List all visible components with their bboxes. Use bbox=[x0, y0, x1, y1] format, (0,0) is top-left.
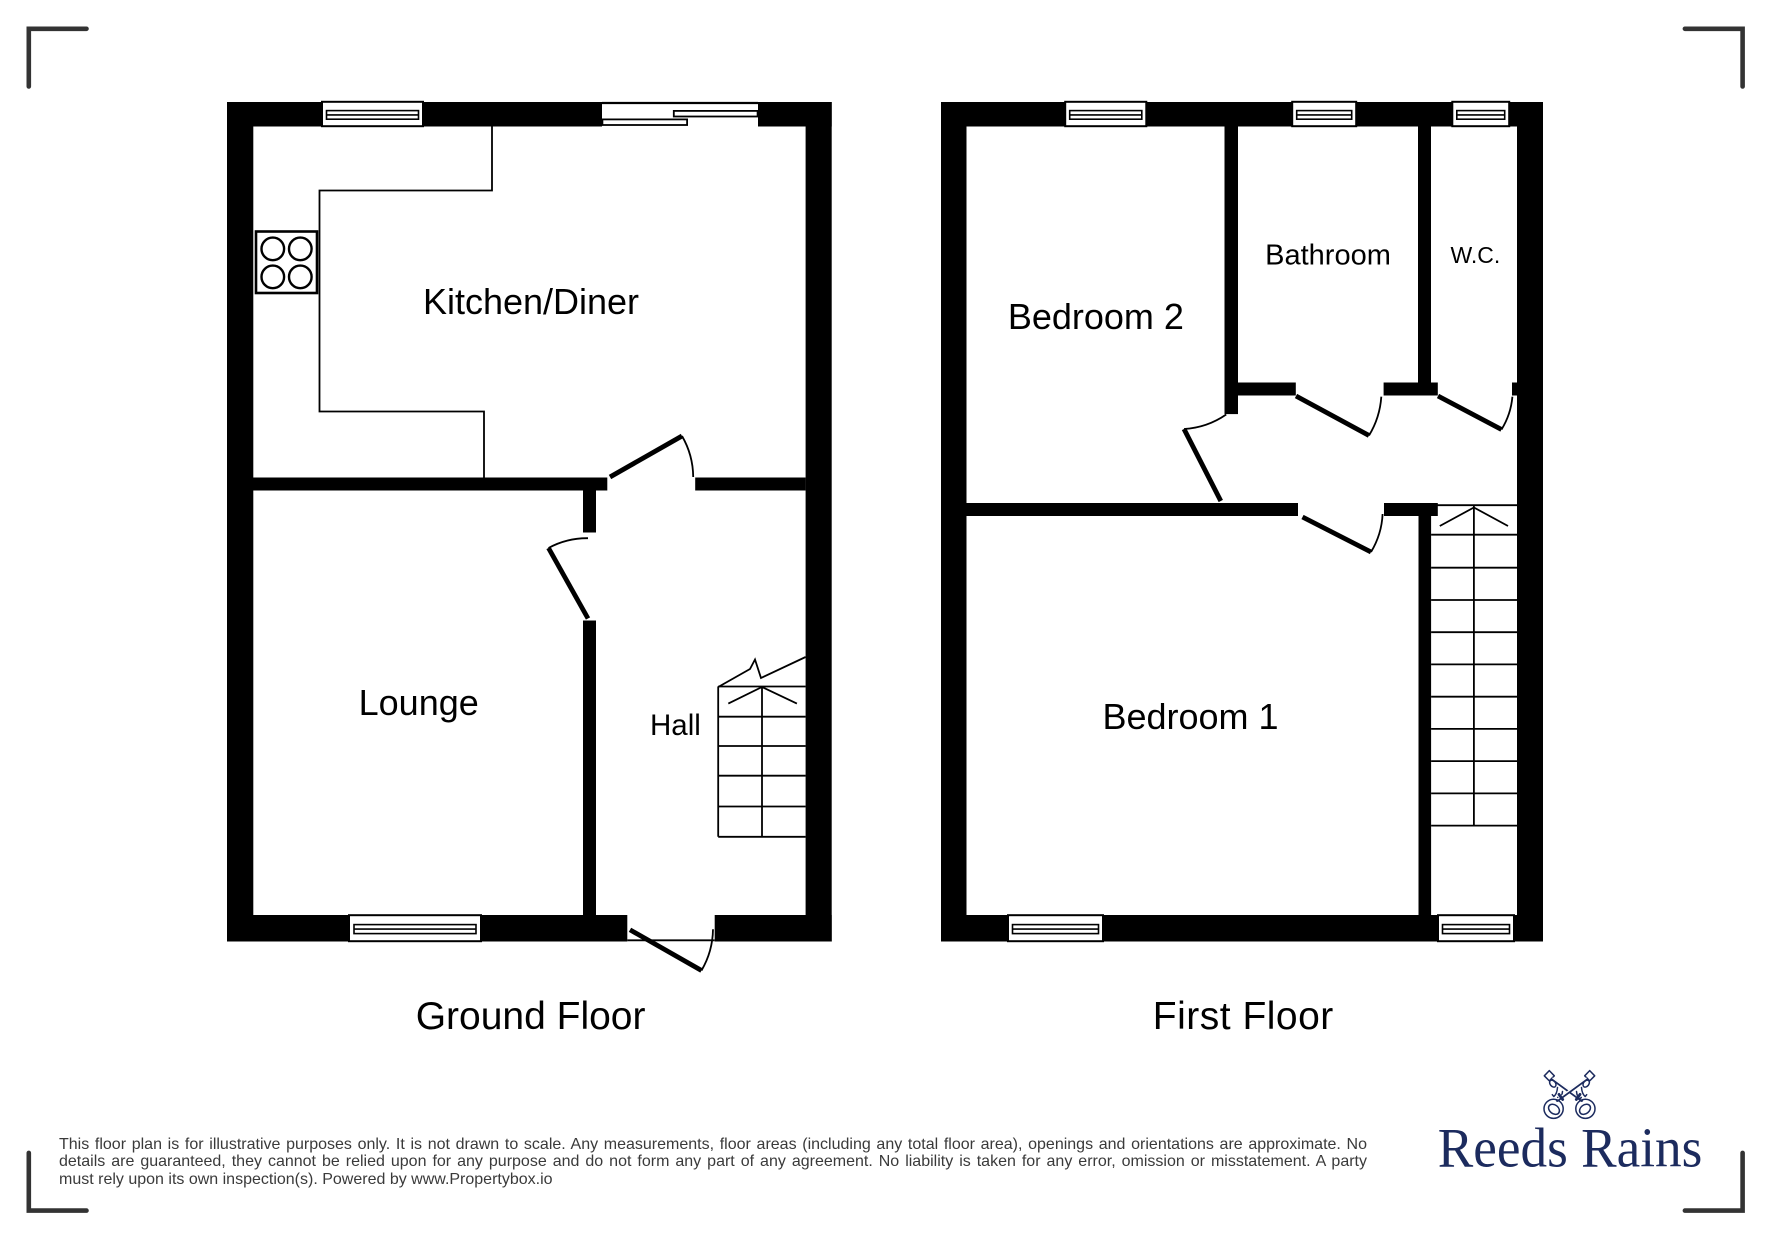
svg-text:Bathroom: Bathroom bbox=[1265, 240, 1391, 272]
svg-text:Bedroom 1: Bedroom 1 bbox=[1102, 696, 1278, 737]
svg-text:Bedroom 2: Bedroom 2 bbox=[1008, 296, 1184, 337]
svg-text:Hall: Hall bbox=[650, 709, 701, 742]
svg-text:Lounge: Lounge bbox=[359, 682, 479, 723]
svg-text:Reeds Rains: Reeds Rains bbox=[1438, 1118, 1703, 1180]
svg-text:First Floor: First Floor bbox=[1153, 995, 1334, 1038]
svg-text:Ground Floor: Ground Floor bbox=[416, 995, 646, 1038]
svg-text:Kitchen/Diner: Kitchen/Diner bbox=[423, 281, 639, 322]
svg-text:W.C.: W.C. bbox=[1450, 242, 1500, 268]
